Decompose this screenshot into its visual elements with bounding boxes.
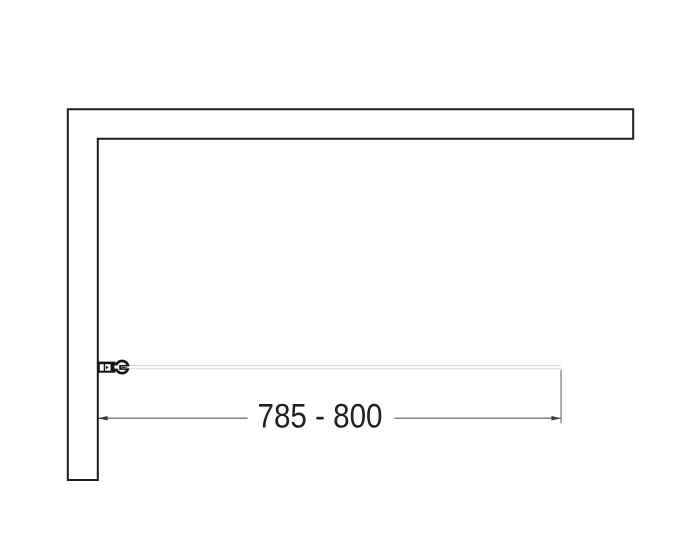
svg-text:785 - 800: 785 - 800	[258, 397, 383, 435]
